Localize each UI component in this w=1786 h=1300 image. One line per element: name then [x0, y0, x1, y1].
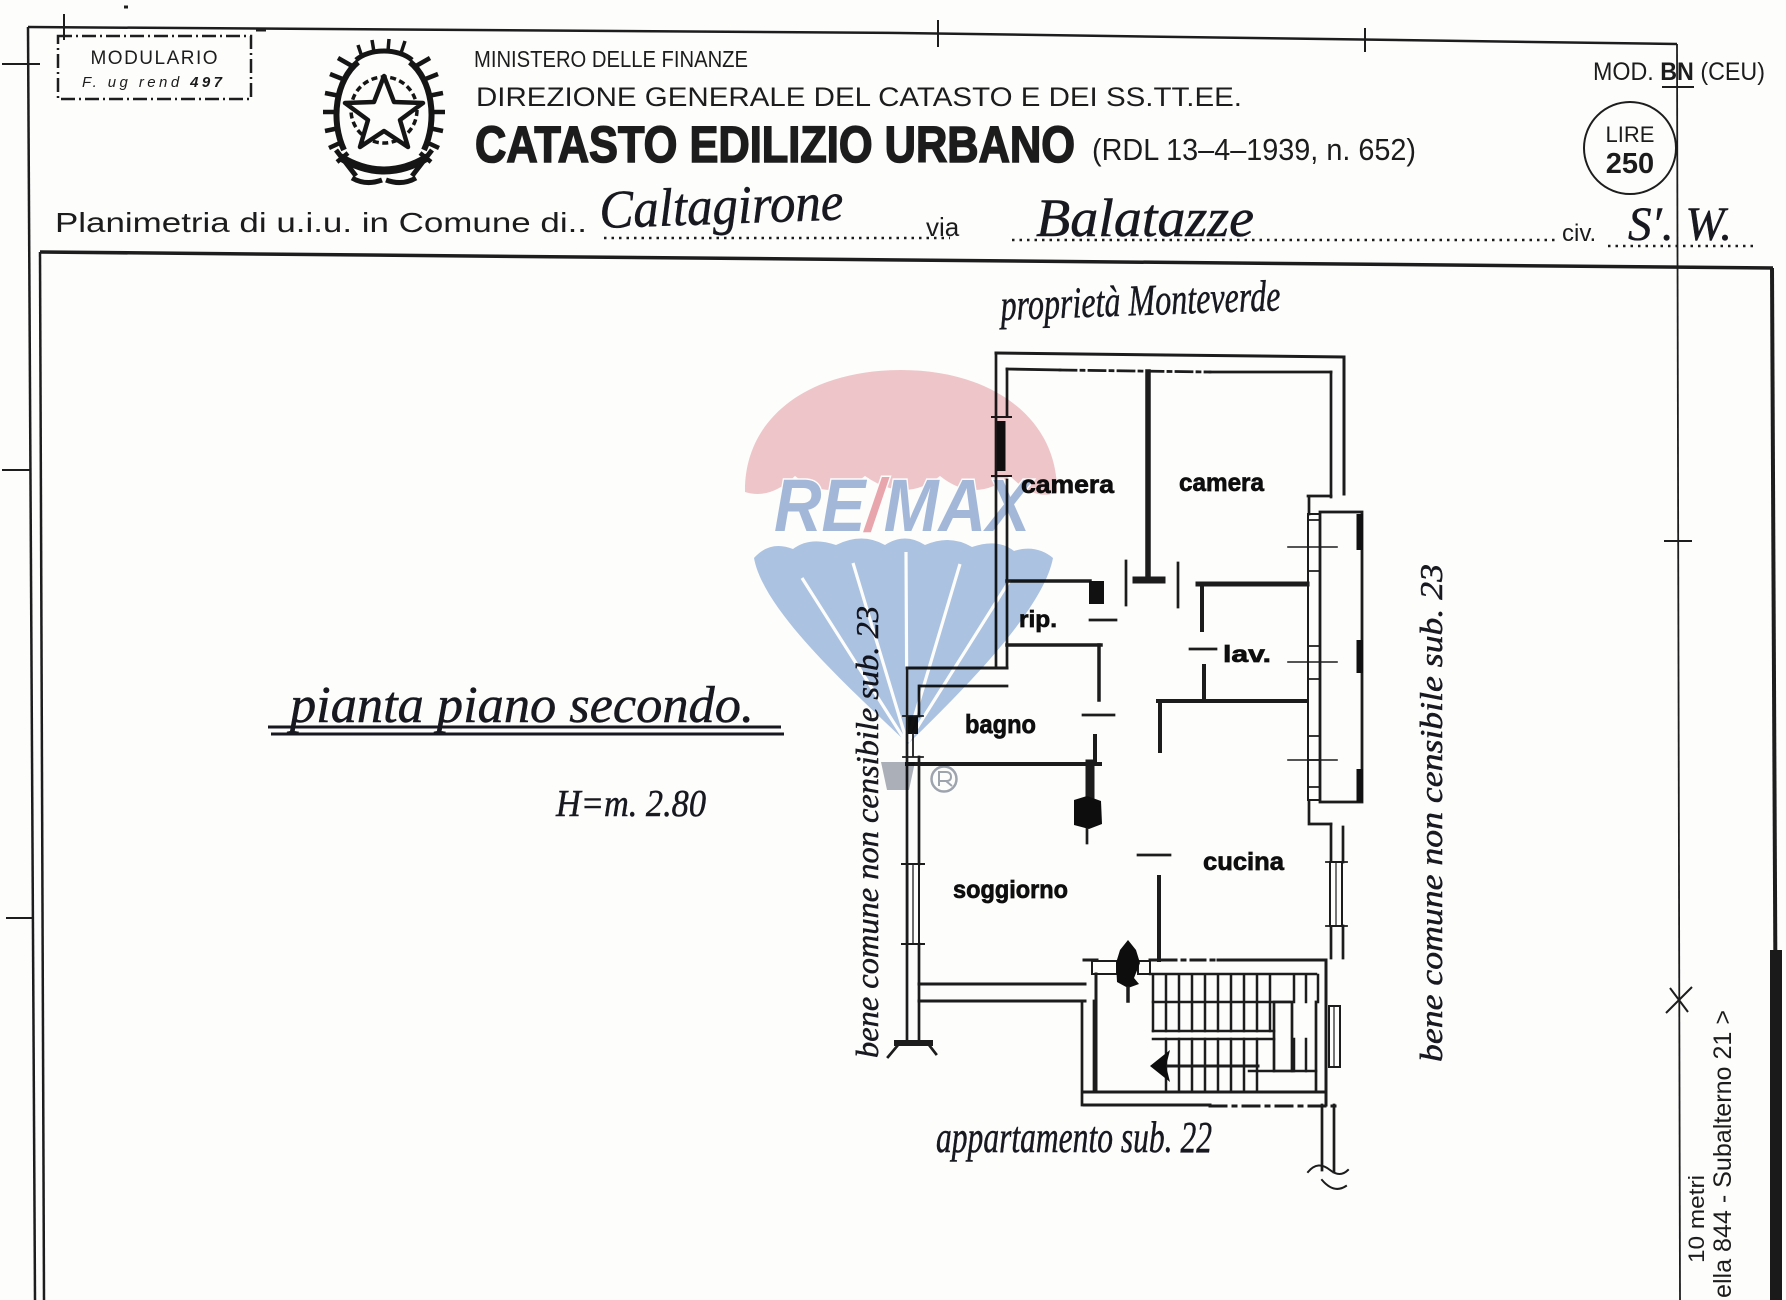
svg-text:F. ug rend 497: F. ug rend 497 — [82, 74, 223, 91]
svg-text:bagno: bagno — [965, 709, 1036, 739]
svg-text:250: 250 — [1606, 148, 1654, 180]
svg-text:MODULARIO: MODULARIO — [91, 48, 218, 69]
svg-text:Balatazze: Balatazze — [1036, 188, 1254, 248]
svg-text:cucina: cucina — [1203, 848, 1285, 876]
svg-text:10 metri: 10 metri — [1684, 1175, 1709, 1263]
svg-text:LIRE: LIRE — [1606, 122, 1655, 147]
svg-text:Planimetria di u.i.u. in C: Planimetria di u.i.u. in Comune di.. — [55, 207, 587, 238]
svg-text:ella 844 - Subalterno 21 >: ella 844 - Subalterno 21 > — [1709, 1010, 1737, 1298]
svg-text:H=m. 2.80: H=m. 2.80 — [555, 783, 706, 825]
svg-text:(RDL 13–4–1939, n. 652): (RDL 13–4–1939, n. 652) — [1092, 132, 1416, 167]
svg-text:via: via — [926, 212, 960, 242]
svg-text:appartamento sub. 22: appartamento sub. 22 — [936, 1113, 1212, 1162]
svg-text:proprietà Monteverde: proprietà Monteverde — [997, 271, 1281, 330]
svg-text:MINISTERO DELLE FINANZE: MINISTERO DELLE FINANZE — [474, 46, 748, 72]
svg-text:civ.: civ. — [1562, 220, 1596, 247]
svg-text:lav.: lav. — [1223, 641, 1271, 667]
svg-text:DIREZIONE GENERALE DEL CATASTO: DIREZIONE GENERALE DEL CATASTO E DEI SS.… — [476, 82, 1242, 112]
svg-text:RE/MAX: RE/MAX — [774, 464, 1034, 547]
svg-text:bene comune non censibile sub.: bene comune non censibile sub. 23 — [1413, 564, 1449, 1062]
svg-text:Caltagirone: Caltagirone — [598, 172, 844, 240]
svg-text:MOD. BN (CEU): MOD. BN (CEU) — [1593, 58, 1765, 86]
svg-text:soggiorno: soggiorno — [953, 876, 1068, 904]
svg-text:S′. W.: S′. W. — [1628, 198, 1732, 251]
svg-text:CATASTO EDILIZIO URBANO: CATASTO EDILIZIO URBANO — [475, 116, 1075, 173]
svg-text:pianta piano secondo.: pianta piano secondo. — [286, 677, 754, 734]
svg-text:camera: camera — [1179, 469, 1265, 497]
